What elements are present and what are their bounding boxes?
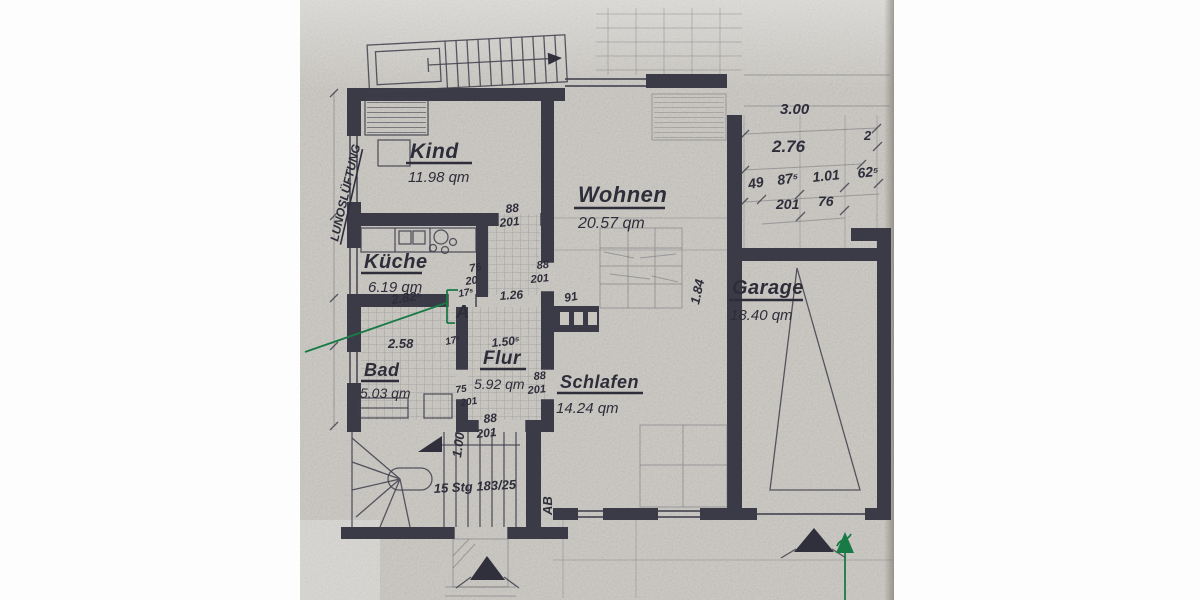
dim-1-01: 1.01 xyxy=(812,166,841,185)
dim-win-20: 20 xyxy=(464,274,480,288)
dim-91: 91 xyxy=(563,289,579,305)
door-schlafen-height: 201 xyxy=(526,383,547,397)
floorplan-photo: A Kind 11.98 qm Wohnen 20.57 qm Küche 6.… xyxy=(0,0,1200,600)
chimney xyxy=(553,306,599,332)
door-wohnen-height: 201 xyxy=(529,272,550,286)
ab-label: AB xyxy=(540,496,555,516)
floorplan-drawing: A Kind 11.98 qm Wohnen 20.57 qm Küche 6.… xyxy=(0,0,1200,600)
dim-2: 2 xyxy=(863,128,872,143)
dim-49: 49 xyxy=(746,173,765,192)
door-bad-width: 75 xyxy=(455,383,468,396)
room-name-kind: Kind xyxy=(410,140,459,163)
room-name-schlafen: Schlafen xyxy=(560,372,639,392)
dim-62-5: 62⁵ xyxy=(857,163,880,181)
room-name-bad: Bad xyxy=(364,360,400,380)
dim-76: 76 xyxy=(818,193,834,209)
dim-1-50-5: 1.50⁵ xyxy=(491,333,521,350)
room-name-kueche: Küche xyxy=(364,251,428,273)
room-name-wohnen: Wohnen xyxy=(578,182,667,207)
room-area-flur: 5.92 qm xyxy=(474,376,525,392)
room-area-wohnen: 20.57 qm xyxy=(577,215,645,232)
dim-201: 201 xyxy=(775,196,800,212)
dim-2-76: 2.76 xyxy=(771,137,806,156)
dim-87-5: 87⁵ xyxy=(776,169,800,188)
room-area-garage: 18.40 qm xyxy=(730,307,793,324)
dim-2-58: 2.58 xyxy=(387,336,414,351)
door-wohnen-width: 88 xyxy=(536,259,550,272)
door-flur-width: 88 xyxy=(483,411,498,426)
room-name-flur: Flur xyxy=(483,348,522,369)
room-area-bad: 5.03 qm xyxy=(360,385,411,401)
door-schlafen-width: 88 xyxy=(533,370,547,383)
dim-3-00: 3.00 xyxy=(780,101,810,118)
green-a-marker: A xyxy=(455,302,469,322)
door-flur-height: 201 xyxy=(475,425,498,441)
room-name-garage: Garage xyxy=(732,277,804,299)
room-area-schlafen: 14.24 qm xyxy=(556,400,619,417)
dim-1-26: 1.26 xyxy=(499,287,524,303)
door-kind-height: 201 xyxy=(498,214,521,230)
room-area-kind: 11.98 qm xyxy=(408,169,469,186)
